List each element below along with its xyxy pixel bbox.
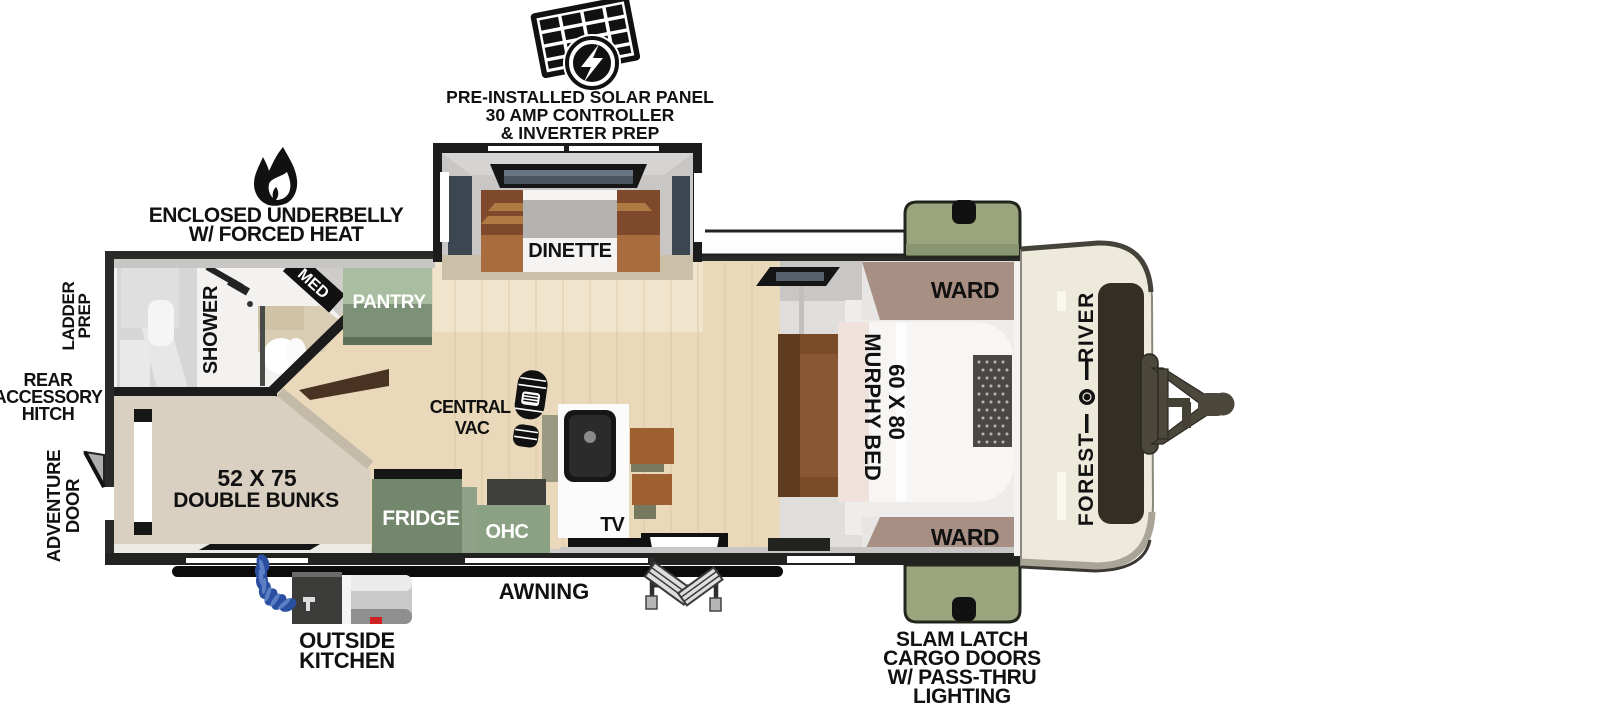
svg-text:DINETTE: DINETTE — [528, 240, 611, 262]
svg-text:60 X 80: 60 X 80 — [884, 364, 909, 440]
svg-text:ADVENTURE: ADVENTURE — [43, 450, 64, 562]
svg-text:AWNING: AWNING — [499, 579, 589, 604]
svg-text:OHC: OHC — [486, 521, 529, 543]
svg-text:DOUBLE BUNKS: DOUBLE BUNKS — [173, 489, 339, 512]
svg-text:TV: TV — [600, 514, 625, 536]
svg-text:VAC: VAC — [455, 418, 490, 438]
svg-text:PRE-INSTALLED SOLAR PANEL: PRE-INSTALLED SOLAR PANEL — [446, 87, 714, 107]
svg-text:FRIDGE: FRIDGE — [382, 507, 460, 530]
svg-text:RIVER: RIVER — [1075, 291, 1098, 363]
svg-text:HITCH: HITCH — [22, 404, 75, 424]
svg-text:PANTRY: PANTRY — [353, 292, 427, 313]
svg-text:KITCHEN: KITCHEN — [299, 648, 395, 673]
svg-text:FOREST: FOREST — [1075, 432, 1098, 526]
svg-text:LIGHTING: LIGHTING — [913, 685, 1011, 708]
svg-text:52 X 75: 52 X 75 — [217, 465, 296, 491]
svg-text:SHOWER: SHOWER — [200, 285, 222, 374]
svg-text:MURPHY BED: MURPHY BED — [860, 333, 885, 481]
svg-text:DOOR: DOOR — [62, 479, 83, 533]
svg-text:WARD: WARD — [931, 277, 999, 303]
svg-text:WARD: WARD — [931, 524, 999, 550]
svg-text:& INVERTER PREP: & INVERTER PREP — [501, 123, 660, 143]
svg-text:W/ FORCED HEAT: W/ FORCED HEAT — [189, 223, 364, 246]
svg-text:30 AMP CONTROLLER: 30 AMP CONTROLLER — [486, 105, 675, 125]
svg-text:CENTRAL: CENTRAL — [430, 397, 511, 417]
svg-text:PREP: PREP — [75, 293, 94, 338]
